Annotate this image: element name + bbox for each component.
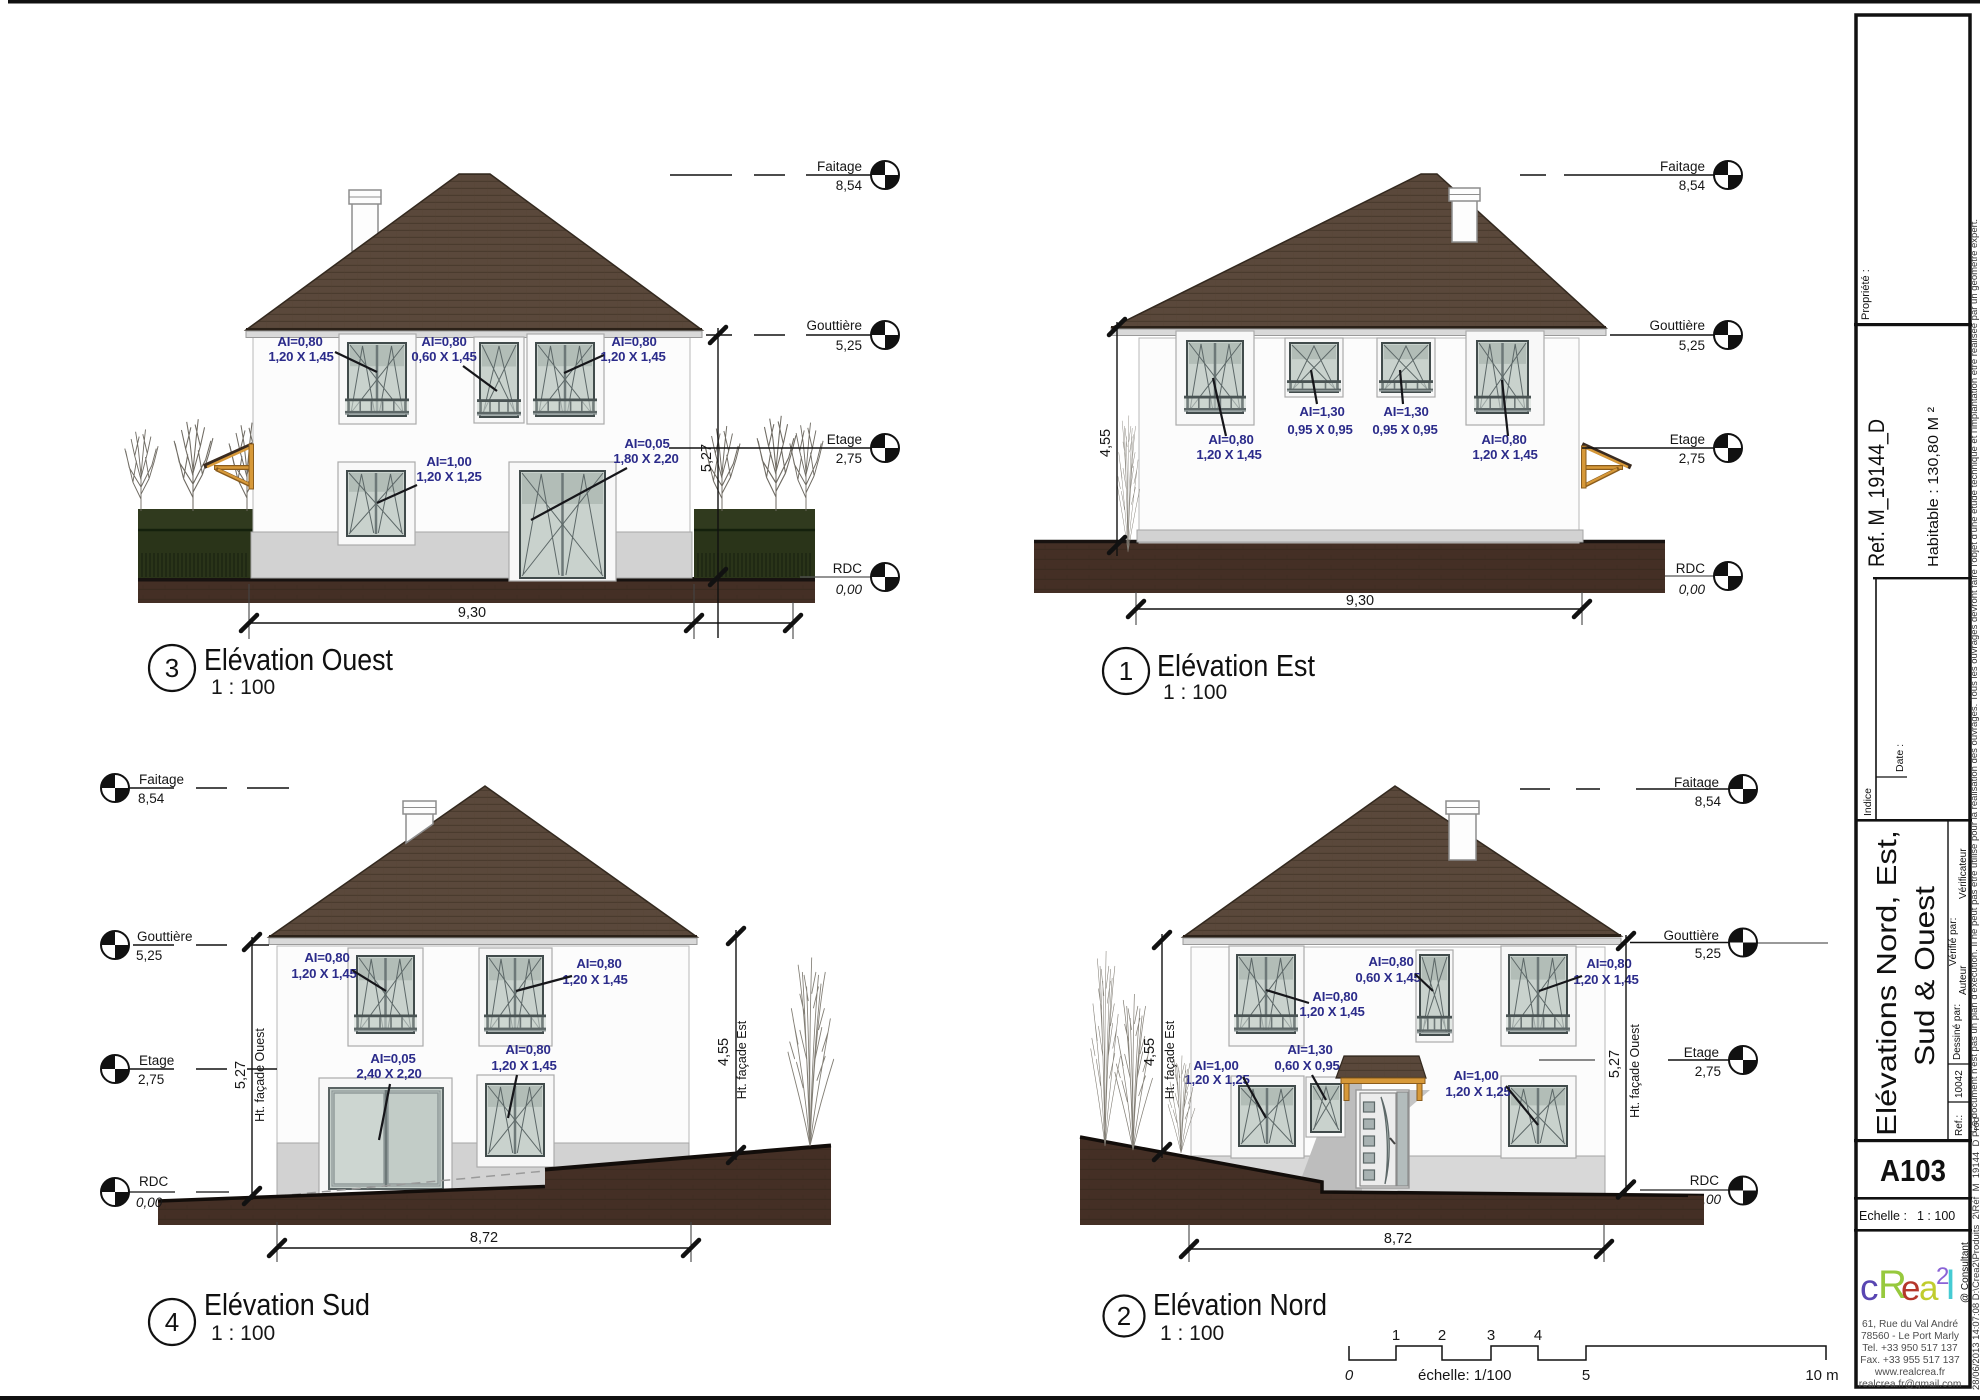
- svg-text:61, Rue du Val André: 61, Rue du Val André: [1862, 1319, 1958, 1330]
- svg-text:RDC: RDC: [833, 561, 862, 576]
- svg-text:2,75: 2,75: [836, 451, 862, 466]
- svg-text:Gouttière: Gouttière: [137, 929, 193, 944]
- svg-text:1,20 X 1,45: 1,20 X 1,45: [491, 1058, 556, 1073]
- svg-text:AI=0,80: AI=0,80: [304, 950, 349, 965]
- svg-text:1 : 100: 1 : 100: [1917, 1209, 1955, 1223]
- svg-text:1,20 X 1,45: 1,20 X 1,45: [1472, 447, 1537, 462]
- svg-text:1,20 X 1,25: 1,20 X 1,25: [1445, 1084, 1510, 1099]
- svg-text:2,40 X 2,20: 2,40 X 2,20: [356, 1066, 421, 1081]
- svg-text:1,20 X 1,45: 1,20 X 1,45: [600, 349, 665, 364]
- svg-text:AI=0,80: AI=0,80: [611, 334, 656, 349]
- svg-text:AI=1,30: AI=1,30: [1287, 1042, 1332, 1057]
- svg-text:AI=0,80: AI=0,80: [1586, 956, 1631, 971]
- svg-text:0,95 X 0,95: 0,95 X 0,95: [1287, 422, 1352, 437]
- svg-text:AI=0,80: AI=0,80: [505, 1042, 550, 1057]
- svg-text:4: 4: [1534, 1327, 1542, 1344]
- svg-text:0,00: 0,00: [1679, 582, 1706, 597]
- svg-text:AI=1,00: AI=1,00: [1193, 1058, 1238, 1073]
- svg-text:Echelle :: Echelle :: [1859, 1209, 1907, 1223]
- svg-text:AI=0,80: AI=0,80: [576, 956, 621, 971]
- svg-text:Indice: Indice: [1862, 788, 1874, 816]
- svg-text:0,95 X 0,95: 0,95 X 0,95: [1372, 422, 1437, 437]
- svg-text:10042: 10042: [1954, 1070, 1965, 1098]
- svg-text:5,27: 5,27: [699, 444, 715, 472]
- svg-text:realcrea.fr@gmail.com: realcrea.fr@gmail.com: [1859, 1379, 1962, 1390]
- svg-text:1 : 100: 1 : 100: [1160, 1322, 1224, 1345]
- svg-text:4,55: 4,55: [1142, 1038, 1158, 1066]
- svg-text:4,55: 4,55: [1098, 429, 1114, 457]
- svg-text:Gouttière: Gouttière: [1649, 318, 1705, 333]
- svg-text:AI=1,30: AI=1,30: [1383, 404, 1428, 419]
- svg-text:Ref.:: Ref.:: [1954, 1115, 1965, 1136]
- svg-text:Gouttière: Gouttière: [806, 318, 862, 333]
- svg-text:3: 3: [1487, 1327, 1495, 1344]
- svg-text:1,20 X 1,45: 1,20 X 1,45: [1573, 972, 1638, 987]
- svg-text:Etage: Etage: [1670, 432, 1705, 447]
- svg-text:AI=1,00: AI=1,00: [1453, 1068, 1498, 1083]
- svg-text:5: 5: [1582, 1367, 1590, 1384]
- svg-text:5,27: 5,27: [233, 1061, 249, 1089]
- svg-text:1: 1: [1392, 1327, 1400, 1344]
- svg-text:Elévation Nord: Elévation Nord: [1153, 1287, 1327, 1322]
- svg-text:0,60 X 0,95: 0,60 X 0,95: [1274, 1058, 1339, 1073]
- svg-text:RDC: RDC: [1690, 1173, 1719, 1188]
- svg-text:Sud & Ouest: Sud & Ouest: [1909, 886, 1940, 1066]
- svg-text:1,20 X 1,45: 1,20 X 1,45: [1196, 447, 1261, 462]
- svg-text:Faitage: Faitage: [139, 772, 184, 787]
- svg-text:1 : 100: 1 : 100: [211, 1322, 275, 1345]
- svg-text:Faitage: Faitage: [817, 159, 862, 174]
- svg-text:5,25: 5,25: [1679, 338, 1705, 353]
- svg-text:Faitage: Faitage: [1674, 775, 1719, 790]
- svg-text:Elévation Est: Elévation Est: [1157, 648, 1315, 683]
- svg-text:Ht. façade Ouest: Ht. façade Ouest: [1628, 1024, 1642, 1118]
- svg-text:e: e: [1901, 1269, 1920, 1308]
- svg-text:1,20 X 1,45: 1,20 X 1,45: [268, 349, 333, 364]
- svg-text:Faitage: Faitage: [1660, 159, 1705, 174]
- svg-text:4,55: 4,55: [716, 1038, 732, 1066]
- svg-text:0,60 X 1,45: 0,60 X 1,45: [411, 349, 476, 364]
- svg-text:9,30: 9,30: [458, 605, 486, 621]
- svg-text:Tel. +33 950 517 137: Tel. +33 950 517 137: [1862, 1343, 1958, 1354]
- svg-text:Dessiné par:: Dessiné par:: [1952, 1004, 1963, 1060]
- svg-text:1,80 X 2,20: 1,80 X 2,20: [613, 451, 678, 466]
- svg-text:8,72: 8,72: [470, 1230, 498, 1246]
- svg-text:0,00: 0,00: [836, 582, 863, 597]
- svg-text:3: 3: [165, 653, 179, 683]
- svg-text:2: 2: [1438, 1327, 1446, 1344]
- svg-text:1,20 X 1,45: 1,20 X 1,45: [291, 966, 356, 981]
- svg-text:AI=0,05: AI=0,05: [370, 1051, 415, 1066]
- svg-text:A103: A103: [1880, 1153, 1946, 1188]
- svg-text:8,54: 8,54: [836, 178, 863, 193]
- svg-text:0,00: 0,00: [136, 1195, 163, 1210]
- svg-text:78560 - Le Port Marly: 78560 - Le Port Marly: [1861, 1331, 1960, 1342]
- svg-text:2: 2: [1117, 1301, 1131, 1331]
- svg-text:1 : 100: 1 : 100: [211, 676, 275, 699]
- svg-text:@ Consultant: @ Consultant: [1960, 1242, 1971, 1303]
- svg-text:2,75: 2,75: [1679, 451, 1705, 466]
- svg-text:AI=0,80: AI=0,80: [1208, 432, 1253, 447]
- svg-text:AI=1,00: AI=1,00: [426, 454, 471, 469]
- svg-text:Vérificateur: Vérificateur: [1958, 848, 1969, 899]
- svg-text:AI=0,80: AI=0,80: [421, 334, 466, 349]
- svg-text:1,20 X 1,25: 1,20 X 1,25: [416, 469, 481, 484]
- svg-text:AI=0,80: AI=0,80: [1368, 954, 1413, 969]
- svg-text:échelle: 1/100: échelle: 1/100: [1418, 1367, 1511, 1384]
- svg-text:0: 0: [1345, 1367, 1354, 1384]
- svg-text:1,20 X 1,25: 1,20 X 1,25: [1184, 1072, 1249, 1087]
- svg-text:8,54: 8,54: [1679, 178, 1706, 193]
- svg-text:Date :: Date :: [1894, 744, 1906, 772]
- svg-text:Ce document n'est pas un plan: Ce document n'est pas un plan d'exécutio…: [1969, 219, 1980, 1133]
- svg-text:AI=0,80: AI=0,80: [1312, 989, 1357, 1004]
- svg-text:1,20 X 1,45: 1,20 X 1,45: [562, 972, 627, 987]
- svg-text:1 : 100: 1 : 100: [1163, 681, 1227, 704]
- svg-text:2,75: 2,75: [1695, 1064, 1721, 1079]
- svg-text:Etage: Etage: [139, 1053, 174, 1068]
- svg-text:Ref. M_19144_D: Ref. M_19144_D: [1864, 419, 1889, 567]
- svg-text:l: l: [1946, 1262, 1955, 1308]
- svg-text:Auteur: Auteur: [1958, 965, 1969, 995]
- svg-text:Ht. façade Est: Ht. façade Est: [1163, 1020, 1177, 1099]
- svg-text:AI=0,80: AI=0,80: [1481, 432, 1526, 447]
- svg-text:Elévation Ouest: Elévation Ouest: [204, 642, 393, 677]
- svg-text:Ht. façade Est: Ht. façade Est: [735, 1020, 749, 1099]
- svg-text:8,54: 8,54: [1695, 794, 1722, 809]
- svg-text:Vérifié par:: Vérifié par:: [1948, 918, 1959, 966]
- svg-text:www.realcrea.fr: www.realcrea.fr: [1874, 1367, 1946, 1378]
- svg-text:5,25: 5,25: [136, 948, 162, 963]
- svg-text:4: 4: [165, 1307, 179, 1337]
- svg-text:AI=0,05: AI=0,05: [624, 436, 669, 451]
- svg-text:2,75: 2,75: [138, 1072, 164, 1087]
- svg-text:1,20 X 1,45: 1,20 X 1,45: [1299, 1004, 1364, 1019]
- svg-text:0,60 X 1,45: 0,60 X 1,45: [1355, 970, 1420, 985]
- svg-text:8,54: 8,54: [138, 791, 165, 806]
- svg-text:1: 1: [1119, 656, 1133, 686]
- svg-text:Habitable : 130,80 M ²: Habitable : 130,80 M ²: [1925, 407, 1942, 567]
- svg-text:Etage: Etage: [827, 432, 862, 447]
- svg-text:5,25: 5,25: [836, 338, 862, 353]
- svg-text:Gouttière: Gouttière: [1663, 928, 1719, 943]
- svg-text:8,72: 8,72: [1384, 1231, 1412, 1247]
- svg-text:RDC: RDC: [1676, 561, 1705, 576]
- svg-text:AI=0,80: AI=0,80: [277, 334, 322, 349]
- svg-text:RDC: RDC: [139, 1174, 168, 1189]
- svg-text:Fax. +33 955 517 137: Fax. +33 955 517 137: [1860, 1355, 1960, 1366]
- svg-text:c: c: [1860, 1267, 1879, 1308]
- svg-text:Propriété :: Propriété :: [1860, 269, 1872, 320]
- svg-text:9,30: 9,30: [1346, 593, 1374, 609]
- svg-text:Elévation Sud: Elévation Sud: [204, 1287, 370, 1322]
- svg-text:Ht. façade Ouest: Ht. façade Ouest: [253, 1028, 267, 1122]
- svg-text:10 m: 10 m: [1805, 1367, 1838, 1384]
- svg-text:28/06/2013 14:07:08 D:\Crea2: 28/06/2013 14:07:08 D:\Crea2\Produits_2\…: [1971, 1117, 1980, 1390]
- svg-text:5,27: 5,27: [1607, 1050, 1623, 1078]
- svg-text:5,25: 5,25: [1695, 946, 1721, 961]
- svg-text:Etage: Etage: [1684, 1045, 1719, 1060]
- svg-text:AI=1,30: AI=1,30: [1299, 404, 1344, 419]
- svg-text:Elévations Nord, Est,: Elévations Nord, Est,: [1871, 830, 1902, 1136]
